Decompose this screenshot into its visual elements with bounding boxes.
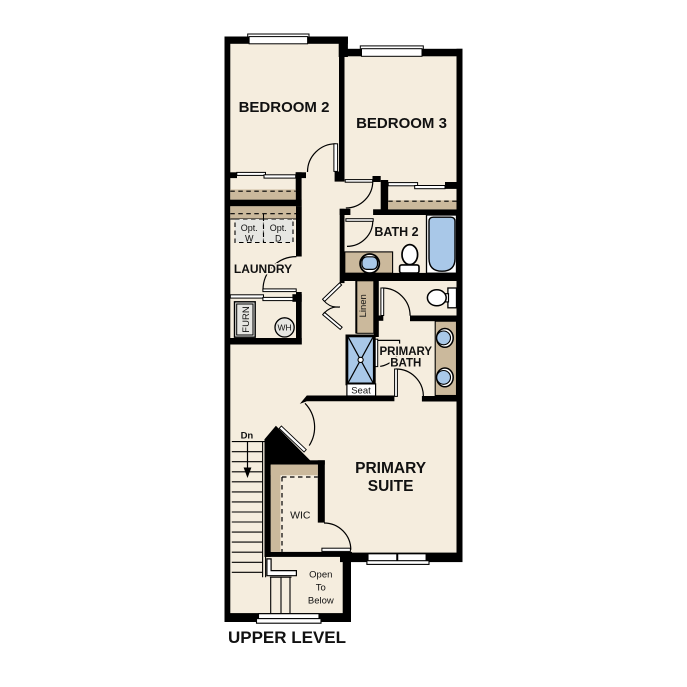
svg-text:BATH 2: BATH 2 [374, 225, 418, 239]
svg-text:BEDROOM 2: BEDROOM 2 [239, 99, 330, 116]
svg-text:Opt.: Opt. [241, 223, 258, 233]
svg-text:Open: Open [309, 570, 332, 581]
svg-text:Linen: Linen [358, 294, 369, 317]
svg-text:To: To [316, 583, 326, 594]
svg-text:Dn: Dn [241, 431, 254, 442]
svg-text:BATH: BATH [390, 358, 421, 370]
svg-text:BEDROOM 3: BEDROOM 3 [356, 115, 447, 132]
svg-text:FURN: FURN [241, 306, 252, 333]
svg-text:SUITE: SUITE [368, 478, 414, 495]
svg-text:PRIMARY: PRIMARY [355, 460, 427, 477]
svg-text:WH: WH [278, 323, 292, 333]
svg-text:D: D [275, 234, 282, 244]
svg-text:PRIMARY: PRIMARY [379, 346, 432, 358]
svg-text:Below: Below [308, 596, 334, 607]
svg-text:UPPER LEVEL: UPPER LEVEL [228, 628, 346, 647]
svg-text:Opt.: Opt. [270, 223, 287, 233]
svg-text:W: W [245, 234, 254, 244]
svg-text:Seat: Seat [351, 386, 371, 397]
svg-text:WIC: WIC [290, 509, 311, 521]
svg-text:LAUNDRY: LAUNDRY [234, 262, 292, 276]
